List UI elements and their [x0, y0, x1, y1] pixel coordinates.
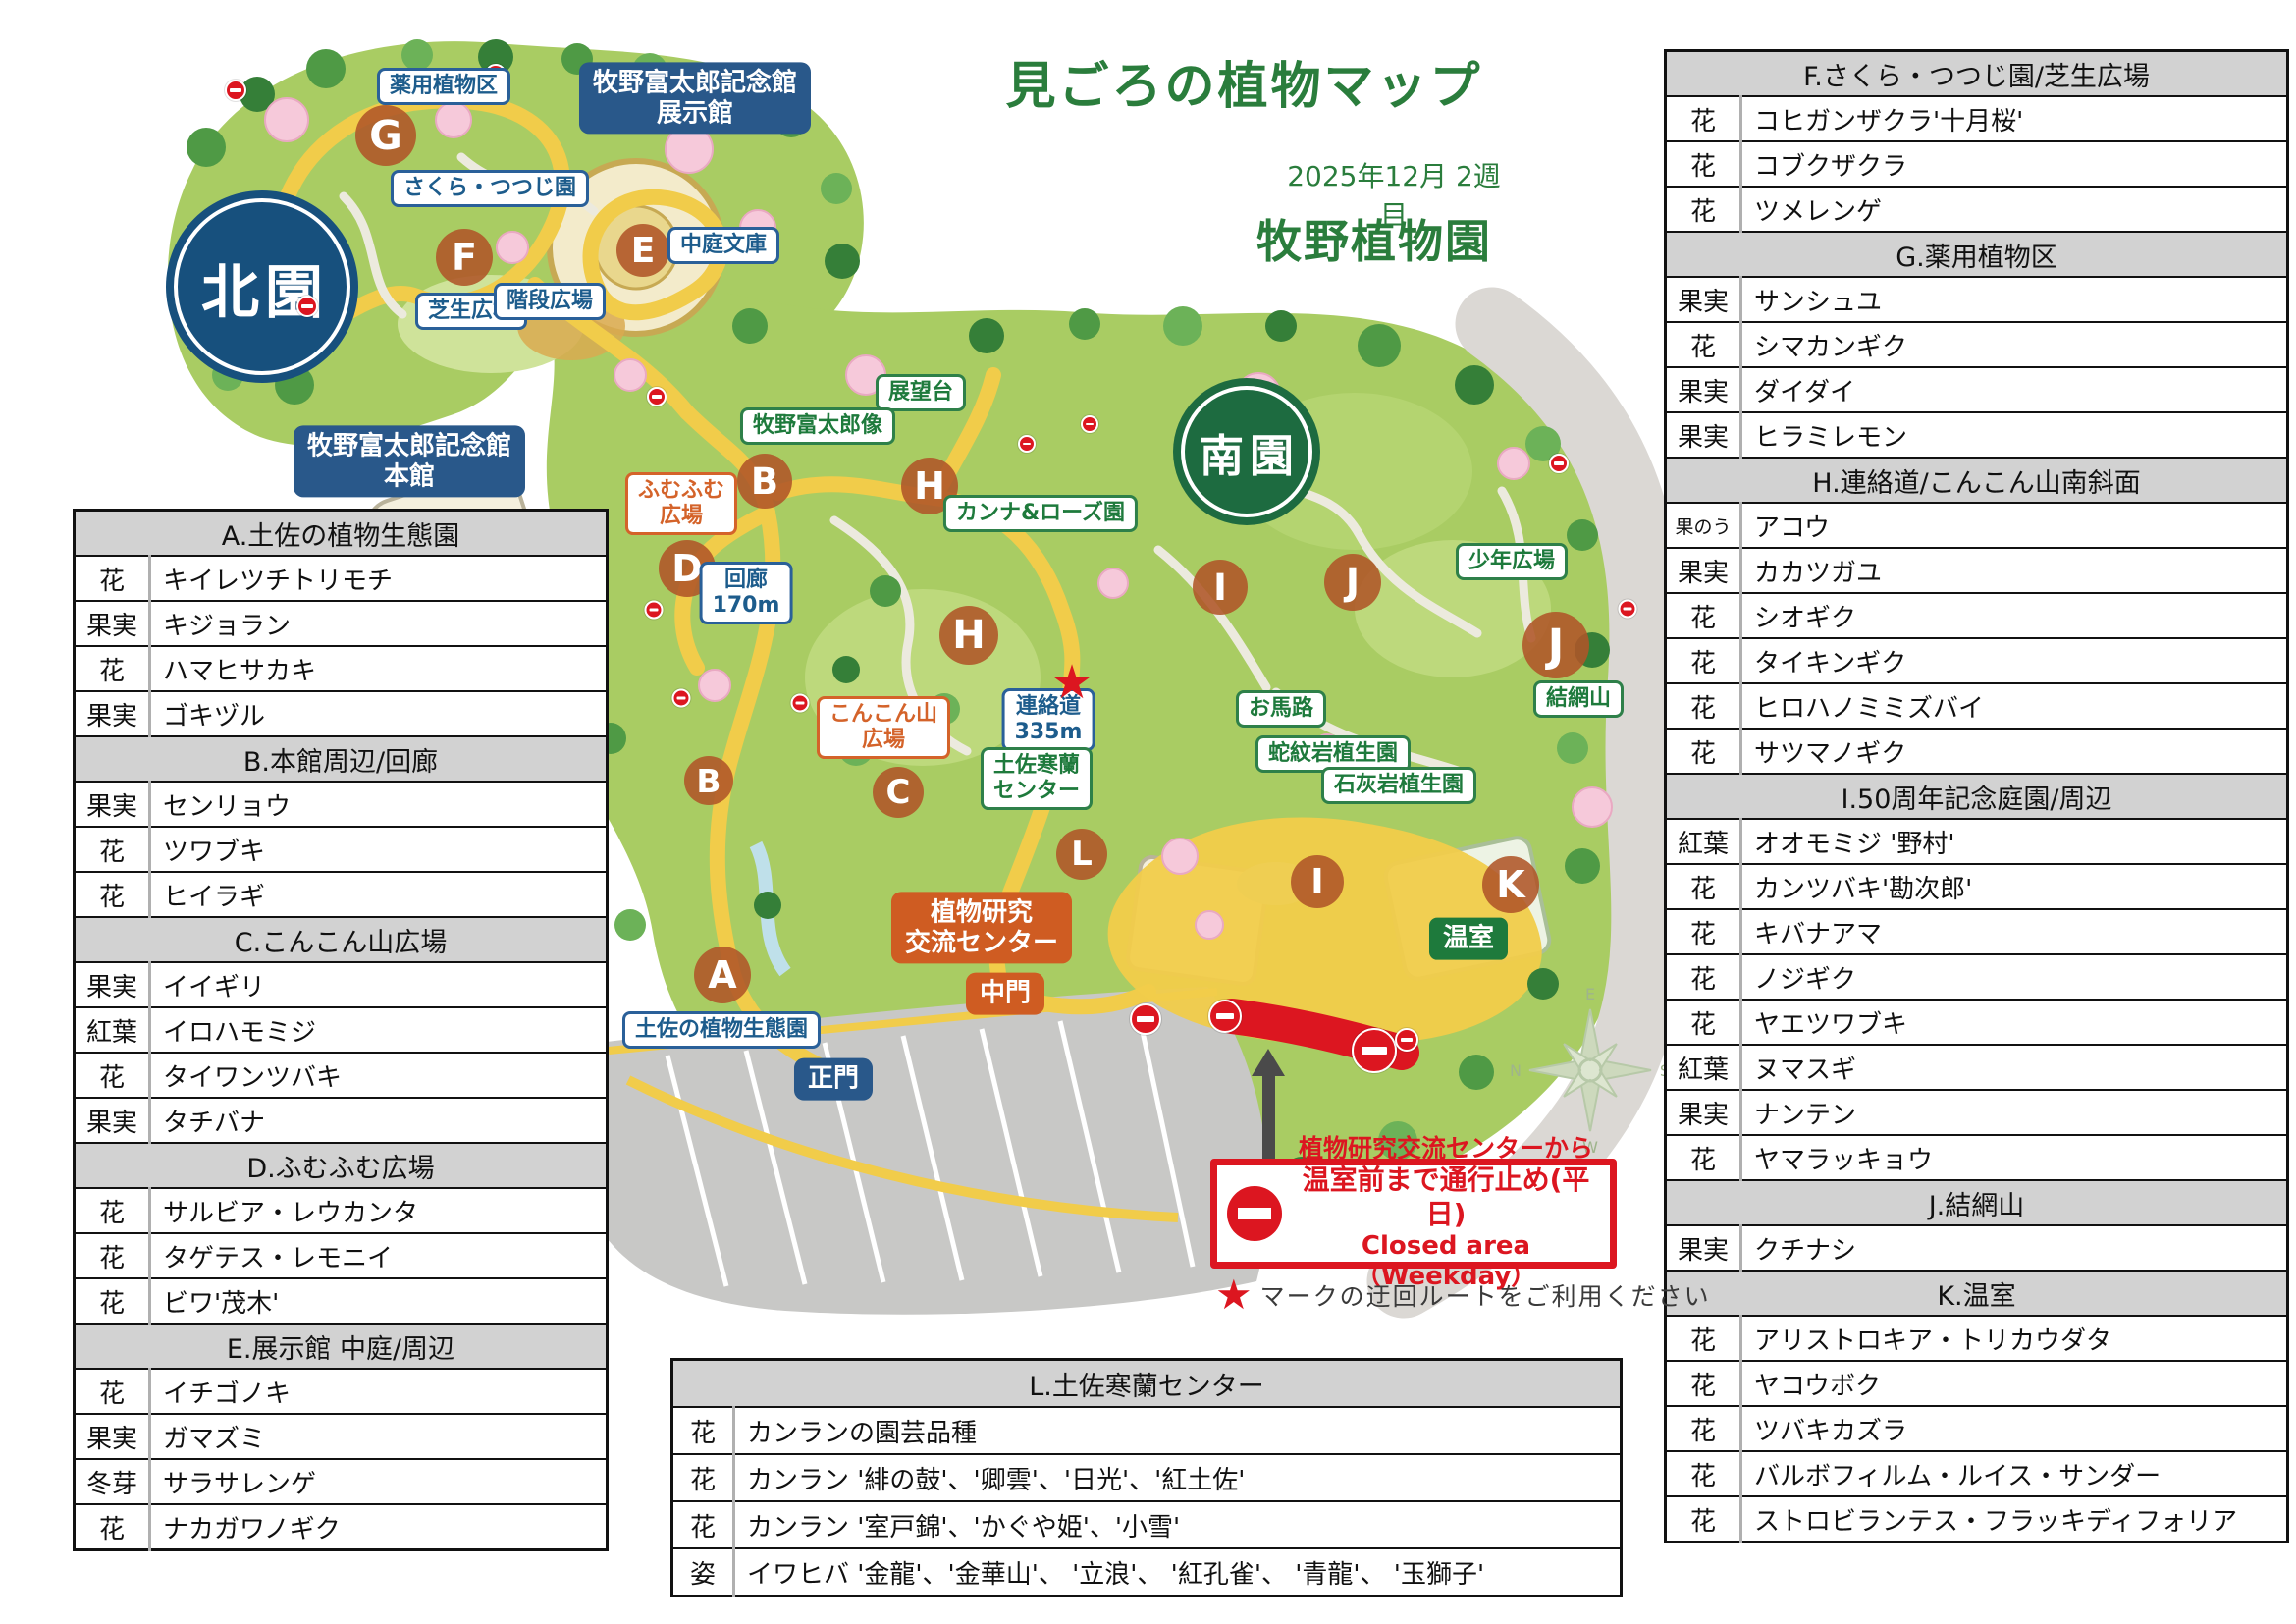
section-header: I.50周年記念庭園/周辺: [1666, 774, 2288, 819]
plant-row: 果実センリョウ: [75, 782, 608, 827]
no-entry-icon: [645, 601, 664, 620]
plant-type: 花: [1666, 187, 1741, 232]
plant-row: 花カンラン '緋の鼓'、'卿雲'、'日光'、'紅土佐': [672, 1454, 1622, 1501]
plant-row: 花ヤコウボク: [1666, 1361, 2288, 1406]
plant-row: 花カンランの園芸品種: [672, 1407, 1622, 1454]
garden-area-circle: 北園: [166, 190, 358, 383]
plant-name: ツバキカズラ: [1741, 1406, 2288, 1451]
map-marker-J: J: [1324, 554, 1381, 611]
plant-row: 紅葉ヌマスギ: [1666, 1045, 2288, 1090]
plant-type: 花: [1666, 864, 1741, 909]
notice-line-1: 植物研究交流センターから: [1292, 1134, 1600, 1164]
plant-type: 花: [1666, 1406, 1741, 1451]
map-marker-L: L: [1056, 829, 1107, 880]
map-marker-I: I: [1193, 560, 1248, 615]
plant-type: 冬芽: [75, 1459, 150, 1504]
plant-row: 花タイキンギク: [1666, 638, 2288, 683]
plant-row: 果実ゴキヅル: [75, 691, 608, 736]
plant-name: アリストロキア・トリカウダタ: [1741, 1316, 2288, 1361]
map-label: 温室: [1429, 918, 1508, 960]
plant-name: タゲテス・レモニイ: [150, 1233, 608, 1278]
plant-type: 花: [75, 827, 150, 872]
plant-name: カンラン '緋の鼓'、'卿雲'、'日光'、'紅土佐': [734, 1454, 1622, 1501]
plant-table: F.さくら・つつじ園/芝生広場花コヒガンザクラ'十月桜'花コブクザクラ花ツメレン…: [1664, 49, 2289, 1543]
table-section: B.本館周辺/回廊: [75, 736, 608, 782]
plant-type: 紅葉: [1666, 1045, 1741, 1090]
section-header: J.結網山: [1666, 1180, 2288, 1225]
notice-line-2: 温室前まで通行止め(平日): [1292, 1164, 1600, 1230]
plant-name: センリョウ: [150, 782, 608, 827]
plant-type: 花: [75, 1188, 150, 1233]
table-section: K.温室: [1666, 1271, 2288, 1316]
plant-name: ヤコウボク: [1741, 1361, 2288, 1406]
plant-type: 花: [1666, 683, 1741, 729]
plant-row: 花カンラン '室戸錦'、'かぐや姫'、'小雪': [672, 1501, 1622, 1548]
detour-arrow: [1249, 1049, 1288, 1163]
plant-type: 果実: [75, 782, 150, 827]
plant-row: 果実イイギリ: [75, 962, 608, 1007]
plant-type: 花: [75, 1233, 150, 1278]
plant-row: 果実キジョラン: [75, 601, 608, 646]
plant-row: 花アリストロキア・トリカウダタ: [1666, 1316, 2288, 1361]
map-label: 牧野富太郎像: [740, 407, 895, 445]
section-header: F.さくら・つつじ園/芝生広場: [1666, 51, 2288, 97]
plant-row: 花ツメレンゲ: [1666, 187, 2288, 232]
plant-name: カンラン '室戸錦'、'かぐや姫'、'小雪': [734, 1501, 1622, 1548]
table-section: J.結網山: [1666, 1180, 2288, 1225]
plant-type: 花: [1666, 141, 1741, 187]
section-header: B.本館周辺/回廊: [75, 736, 608, 782]
map-marker-F: F: [436, 229, 493, 286]
plant-name: ビワ'茂木': [150, 1278, 608, 1324]
plant-name: ガマズミ: [150, 1414, 608, 1459]
plant-row: 花キイレツチトリモチ: [75, 556, 608, 601]
plant-name: イワヒバ '金龍'、'金華山'、 '立浪'、 '紅孔雀'、 '青龍'、 '玉獅子…: [734, 1548, 1622, 1597]
map-label: 植物研究 交流センター: [891, 892, 1072, 963]
table-section: G.薬用植物区: [1666, 232, 2288, 277]
plant-name: ヌマスギ: [1741, 1045, 2288, 1090]
no-entry-icon: [791, 694, 810, 713]
plant-type: 花: [75, 1504, 150, 1550]
plant-name: ヤマラッキョウ: [1741, 1135, 2288, 1180]
no-entry-icon: [1208, 1000, 1242, 1033]
no-entry-icon: [296, 296, 318, 317]
table-section: L.土佐寒蘭センター: [672, 1360, 1622, 1408]
map-marker-J: J: [1522, 612, 1589, 678]
plant-name: イイギリ: [150, 962, 608, 1007]
plant-name: クチナシ: [1741, 1225, 2288, 1271]
plant-type: 果実: [1666, 277, 1741, 322]
plant-table-left: A.土佐の植物生態園花キイレツチトリモチ果実キジョラン花ハマヒサカキ果実ゴキヅル…: [73, 509, 609, 1551]
plant-name: ハマヒサカキ: [150, 646, 608, 691]
plant-type: 花: [1666, 1135, 1741, 1180]
plant-type: 果実: [75, 1098, 150, 1143]
map-marker-A: A: [694, 947, 751, 1003]
plant-name: アコウ: [1741, 503, 2288, 548]
plant-type: 果実: [1666, 1090, 1741, 1135]
map-marker-B: B: [684, 756, 733, 805]
garden-name: 牧野植物園: [1232, 206, 1517, 271]
plant-row: 花バルボフィルム・ルイス・サンダー: [1666, 1451, 2288, 1496]
plant-name: カンランの園芸品種: [734, 1407, 1622, 1454]
plant-type: 花: [1666, 638, 1741, 683]
map-canvas: E W N S 北園南園GFEBDHHIJJBCALIK薬用植物区牧野富太郎記念…: [0, 0, 2296, 1624]
plant-name: ストロビランテス・フラッキディフォリア: [1741, 1496, 2288, 1543]
plant-row: 花ツバキカズラ: [1666, 1406, 2288, 1451]
section-header: D.ふむふむ広場: [75, 1143, 608, 1188]
map-label: 石灰岩植生園: [1321, 767, 1476, 804]
plant-row: 花ヤエツワブキ: [1666, 1000, 2288, 1045]
map-marker-E: E: [616, 224, 669, 277]
plant-row: 花サルビア・レウカンタ: [75, 1188, 608, 1233]
plant-type: 紅葉: [75, 1007, 150, 1053]
no-entry-icon: [672, 689, 691, 708]
plant-row: 花ナカガワノギク: [75, 1504, 608, 1550]
plant-row: 花ハマヒサカキ: [75, 646, 608, 691]
plant-row: 果実クチナシ: [1666, 1225, 2288, 1271]
plant-type: 花: [75, 1369, 150, 1414]
table-section: A.土佐の植物生態園: [75, 511, 608, 557]
plant-row: 花シマカンギク: [1666, 322, 2288, 367]
map-label: 牧野富太郎記念館 展示館: [579, 62, 811, 134]
table-section: D.ふむふむ広場: [75, 1143, 608, 1188]
plant-type: 花: [75, 556, 150, 601]
plant-type: 花: [1666, 1000, 1741, 1045]
plant-row: 果実ガマズミ: [75, 1414, 608, 1459]
map-label: お馬路: [1236, 690, 1326, 728]
plant-type: 果のう: [1666, 503, 1741, 548]
map-label: 展望台: [876, 374, 966, 411]
map-label: 結網山: [1533, 680, 1624, 718]
plant-row: 花タイワンツバキ: [75, 1053, 608, 1098]
plant-type: 花: [75, 1053, 150, 1098]
no-entry-icon: [1395, 1028, 1418, 1052]
no-entry-icon: [1352, 1028, 1397, 1073]
plant-type: 花: [75, 646, 150, 691]
plant-name: カカツガユ: [1741, 548, 2288, 593]
map-label: 牧野富太郎記念館 本館: [294, 425, 525, 497]
closed-area-notice: 植物研究交流センターから 温室前まで通行止め(平日) Closed area（W…: [1210, 1159, 1617, 1269]
map-marker-K: K: [1482, 856, 1539, 913]
plant-type: 果実: [1666, 548, 1741, 593]
plant-type: 花: [1666, 322, 1741, 367]
plant-type: 花: [75, 1278, 150, 1324]
map-marker-I: I: [1291, 855, 1344, 908]
plant-name: サツマノギク: [1741, 729, 2288, 774]
map-label: 薬用植物区: [377, 68, 510, 105]
plant-type: 花: [672, 1454, 734, 1501]
table-section: H.連絡道/こんこん山南斜面: [1666, 458, 2288, 503]
plant-type: 果実: [75, 691, 150, 736]
plant-row: 花カンツバキ'勘次郎': [1666, 864, 2288, 909]
plant-row: 花ツワブキ: [75, 827, 608, 872]
plant-row: 紅葉イロハモミジ: [75, 1007, 608, 1053]
plant-name: ナンテン: [1741, 1090, 2288, 1135]
plant-name: キイレツチトリモチ: [150, 556, 608, 601]
plant-name: シオギク: [1741, 593, 2288, 638]
map-label: さくら・つつじ園: [391, 170, 589, 207]
no-entry-icon: [1227, 1186, 1282, 1241]
map-label: 中庭文庫: [667, 227, 779, 264]
plant-name: オオモミジ '野村': [1741, 819, 2288, 864]
detour-text: マークの迂回ルートをご利用ください: [1260, 1277, 1711, 1313]
plant-name: タイワンツバキ: [150, 1053, 608, 1098]
garden-area-circle: 南園: [1173, 378, 1320, 525]
map-marker-G: G: [355, 105, 416, 166]
plant-type: 花: [672, 1407, 734, 1454]
plant-row: 花ビワ'茂木': [75, 1278, 608, 1324]
plant-type: 花: [1666, 1496, 1741, 1543]
plant-type: 果実: [75, 601, 150, 646]
plant-row: 花シオギク: [1666, 593, 2288, 638]
plant-type: 花: [1666, 96, 1741, 141]
plant-row: 花ノジギク: [1666, 954, 2288, 1000]
plant-name: ヤエツワブキ: [1741, 1000, 2288, 1045]
plant-table: A.土佐の植物生態園花キイレツチトリモチ果実キジョラン花ハマヒサカキ果実ゴキヅル…: [73, 509, 609, 1551]
plant-type: 果実: [75, 1414, 150, 1459]
plant-name: ヒイラギ: [150, 872, 608, 917]
table-section: E.展示館 中庭/周辺: [75, 1324, 608, 1369]
no-entry-icon: [1018, 435, 1036, 453]
plant-type: 果実: [75, 962, 150, 1007]
plant-row: 花キバナアマ: [1666, 909, 2288, 954]
no-entry-icon: [1619, 600, 1637, 619]
plant-name: コヒガンザクラ'十月桜': [1741, 96, 2288, 141]
table-section: F.さくら・つつじ園/芝生広場: [1666, 51, 2288, 97]
plant-row: 果実ヒラミレモン: [1666, 412, 2288, 458]
plant-name: ツメレンゲ: [1741, 187, 2288, 232]
plant-name: タイキンギク: [1741, 638, 2288, 683]
plant-type: 花: [1666, 1316, 1741, 1361]
map-marker-B: B: [737, 454, 792, 509]
map-marker-H: H: [939, 606, 998, 665]
star-icon: ★: [1215, 1274, 1253, 1316]
plant-type: 花: [1666, 954, 1741, 1000]
map-label: 少年広場: [1456, 543, 1568, 580]
plant-name: キジョラン: [150, 601, 608, 646]
section-header: L.土佐寒蘭センター: [672, 1360, 1622, 1408]
plant-name: ゴキヅル: [150, 691, 608, 736]
section-header: E.展示館 中庭/周辺: [75, 1324, 608, 1369]
plant-row: 花ヒイラギ: [75, 872, 608, 917]
plant-row: 果のうアコウ: [1666, 503, 2288, 548]
plant-row: 果実サンシュユ: [1666, 277, 2288, 322]
plant-type: 姿: [672, 1548, 734, 1597]
plant-row: 果実ナンテン: [1666, 1090, 2288, 1135]
detour-note: ★ マークの迂回ルートをご利用ください: [1215, 1274, 1711, 1316]
no-entry-icon: [1549, 454, 1569, 473]
map-label: こんこん山 広場: [817, 696, 950, 759]
plant-name: シマカンギク: [1741, 322, 2288, 367]
plant-name: ヒラミレモン: [1741, 412, 2288, 458]
table-section: C.こんこん山広場: [75, 917, 608, 962]
plant-name: ツワブキ: [150, 827, 608, 872]
plant-row: 花ストロビランテス・フラッキディフォリア: [1666, 1496, 2288, 1543]
no-entry-icon: [225, 80, 246, 101]
plant-row: 果実タチバナ: [75, 1098, 608, 1143]
plant-name: イチゴノキ: [150, 1369, 608, 1414]
plant-row: 花タゲテス・レモニイ: [75, 1233, 608, 1278]
plant-type: 花: [672, 1501, 734, 1548]
plant-table-right: F.さくら・つつじ園/芝生広場花コヒガンザクラ'十月桜'花コブクザクラ花ツメレン…: [1664, 49, 2289, 1543]
plant-name: サルビア・レウカンタ: [150, 1188, 608, 1233]
plant-type: 果実: [1666, 367, 1741, 412]
plant-name: ナカガワノギク: [150, 1504, 608, 1550]
plant-row: 冬芽サラサレンゲ: [75, 1459, 608, 1504]
map-label: 土佐寒蘭 センター: [981, 747, 1093, 810]
section-header: A.土佐の植物生態園: [75, 511, 608, 557]
plant-type: 果実: [1666, 1225, 1741, 1271]
no-entry-icon: [1081, 415, 1098, 433]
plant-row: 花コブクザクラ: [1666, 141, 2288, 187]
section-header: H.連絡道/こんこん山南斜面: [1666, 458, 2288, 503]
plant-name: サンシュユ: [1741, 277, 2288, 322]
plant-name: サラサレンゲ: [150, 1459, 608, 1504]
map-label: 正門: [794, 1058, 873, 1101]
plant-type: 花: [1666, 1361, 1741, 1406]
page-title: 見ごろの植物マップ: [977, 45, 1512, 118]
plant-name: ダイダイ: [1741, 367, 2288, 412]
plant-type: 果実: [1666, 412, 1741, 458]
map-label: 土佐の植物生態園: [622, 1011, 821, 1049]
plant-name: ヒロハノミミズバイ: [1741, 683, 2288, 729]
detour-star-icon: ★: [1050, 659, 1093, 706]
plant-type: 花: [75, 872, 150, 917]
plant-type: 紅葉: [1666, 819, 1741, 864]
plant-row: 花サツマノギク: [1666, 729, 2288, 774]
plant-name: キバナアマ: [1741, 909, 2288, 954]
plant-name: タチバナ: [150, 1098, 608, 1143]
plant-type: 花: [1666, 729, 1741, 774]
plant-type: 花: [1666, 909, 1741, 954]
map-label: 中門: [966, 973, 1044, 1015]
plant-type: 花: [1666, 1451, 1741, 1496]
plant-table-kanran-center: L.土佐寒蘭センター花カンランの園芸品種花カンラン '緋の鼓'、'卿雲'、'日光…: [670, 1358, 1623, 1597]
plant-name: イロハモミジ: [150, 1007, 608, 1053]
plant-row: 花コヒガンザクラ'十月桜': [1666, 96, 2288, 141]
plant-name: バルボフィルム・ルイス・サンダー: [1741, 1451, 2288, 1496]
plant-type: 花: [1666, 593, 1741, 638]
plant-name: コブクザクラ: [1741, 141, 2288, 187]
plant-row: 花ヒロハノミミズバイ: [1666, 683, 2288, 729]
map-label: カンナ&ローズ園: [943, 495, 1138, 532]
plant-row: 姿イワヒバ '金龍'、'金華山'、 '立浪'、 '紅孔雀'、 '青龍'、 '玉獅…: [672, 1548, 1622, 1597]
section-header: G.薬用植物区: [1666, 232, 2288, 277]
section-header: C.こんこん山広場: [75, 917, 608, 962]
table-section: I.50周年記念庭園/周辺: [1666, 774, 2288, 819]
map-label: 階段広場: [494, 283, 606, 320]
map-marker-C: C: [873, 767, 924, 818]
plant-row: 果実カカツガユ: [1666, 548, 2288, 593]
no-entry-icon: [1130, 1003, 1161, 1035]
plant-row: 花イチゴノキ: [75, 1369, 608, 1414]
plant-row: 紅葉オオモミジ '野村': [1666, 819, 2288, 864]
map-label: 回廊 170m: [700, 562, 793, 624]
no-entry-icon: [647, 387, 667, 406]
map-label: ふむふむ 広場: [625, 472, 737, 535]
plant-row: 果実ダイダイ: [1666, 367, 2288, 412]
plant-name: カンツバキ'勘次郎': [1741, 864, 2288, 909]
section-header: K.温室: [1666, 1271, 2288, 1316]
plant-row: 花ヤマラッキョウ: [1666, 1135, 2288, 1180]
plant-name: ノジギク: [1741, 954, 2288, 1000]
plant-table: L.土佐寒蘭センター花カンランの園芸品種花カンラン '緋の鼓'、'卿雲'、'日光…: [670, 1358, 1623, 1597]
